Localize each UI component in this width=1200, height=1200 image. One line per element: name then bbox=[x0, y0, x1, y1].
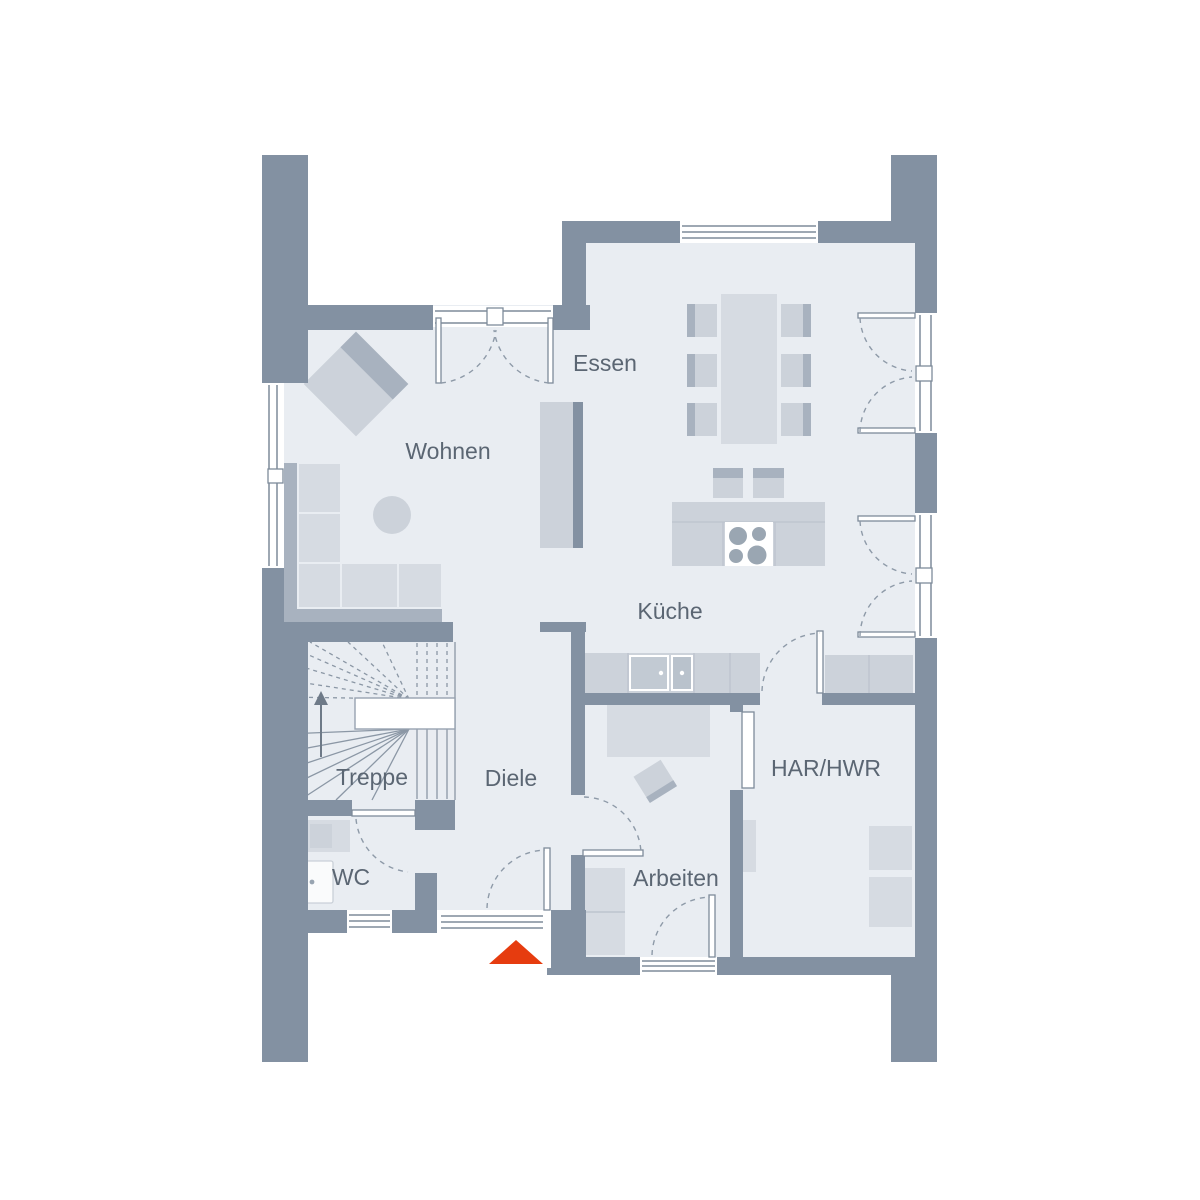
door-handle-icon bbox=[487, 308, 503, 325]
room-label-arbeiten: Arbeiten bbox=[633, 865, 719, 891]
wall-bottom-d bbox=[717, 957, 937, 975]
room-label-wc: WC bbox=[332, 864, 370, 890]
dining-chair bbox=[687, 403, 717, 436]
wall-bottom-b bbox=[392, 910, 437, 933]
wall-stair-bottom bbox=[262, 800, 352, 816]
wall-right-strip-top bbox=[891, 155, 937, 221]
wall-left-thin bbox=[262, 568, 284, 622]
floor-plan-canvas: Wohnen Essen Küche Treppe Diele WC Arbei… bbox=[0, 0, 1200, 1200]
wall-bottom-corner bbox=[547, 910, 586, 975]
wall-top-essen-right bbox=[818, 221, 937, 243]
room-label-diele: Diele bbox=[485, 765, 537, 791]
wc-toilet bbox=[306, 861, 333, 903]
wall-right-c bbox=[915, 638, 937, 957]
room-label-treppe: Treppe bbox=[336, 764, 408, 790]
dining-chair bbox=[687, 304, 717, 337]
dining-chair bbox=[781, 304, 811, 337]
wall-diele-arbeiten-a bbox=[571, 632, 585, 795]
stair-landing bbox=[355, 698, 455, 729]
dining-chair bbox=[781, 354, 811, 387]
room-label-har-hwr: HAR/HWR bbox=[771, 755, 881, 781]
wall-arbeiten-har-a bbox=[730, 705, 743, 712]
wall-bottom-c bbox=[586, 957, 640, 975]
wall-bottom-a bbox=[262, 910, 347, 933]
kitchen-counter bbox=[585, 653, 760, 693]
dining-chair bbox=[781, 403, 811, 436]
arbeiten-cabinet bbox=[585, 868, 625, 955]
room-label-essen: Essen bbox=[573, 350, 637, 376]
dining-table bbox=[721, 294, 777, 444]
dining-table-group bbox=[687, 294, 811, 444]
window-wc-south bbox=[347, 910, 392, 933]
wall-kueche-south-west bbox=[585, 693, 760, 705]
washer-dryer bbox=[868, 825, 913, 928]
wall-stub bbox=[540, 622, 586, 632]
wall-arbeiten-har-b bbox=[730, 790, 743, 957]
room-label-kueche: Küche bbox=[637, 598, 702, 624]
desk bbox=[607, 705, 710, 757]
bar-stool bbox=[753, 468, 784, 498]
wall-right-strip-bottom bbox=[891, 975, 937, 1062]
har-cabinet bbox=[742, 820, 756, 872]
wc-vanity bbox=[308, 820, 350, 852]
kitchen-island bbox=[672, 502, 825, 566]
bar-stool bbox=[713, 468, 743, 498]
wall-right-b bbox=[915, 433, 937, 513]
kitchen-tall-cabinets bbox=[825, 655, 913, 693]
wall-top-wohnen-right bbox=[553, 305, 590, 330]
wall-left-top bbox=[262, 155, 308, 383]
wall-left-bottom bbox=[262, 622, 308, 1062]
floor-plan-svg: Wohnen Essen Küche Treppe Diele WC Arbei… bbox=[0, 0, 1200, 1200]
window-handle-icon bbox=[268, 469, 283, 483]
wall-wc-corner bbox=[415, 800, 455, 830]
wall-kueche-south-east bbox=[822, 693, 915, 705]
wall-top-wohnen-left bbox=[262, 305, 433, 330]
coffee-table bbox=[373, 496, 411, 534]
dining-chair bbox=[687, 354, 717, 387]
door-handle-icon bbox=[916, 568, 932, 583]
wall-stair-top bbox=[284, 622, 453, 642]
door-har-open-leaf bbox=[742, 712, 754, 788]
room-label-wohnen: Wohnen bbox=[405, 438, 490, 464]
tv-board bbox=[540, 402, 583, 548]
window-living-west bbox=[262, 383, 284, 568]
window-essen-north bbox=[680, 221, 818, 243]
door-handle-icon bbox=[916, 366, 932, 381]
